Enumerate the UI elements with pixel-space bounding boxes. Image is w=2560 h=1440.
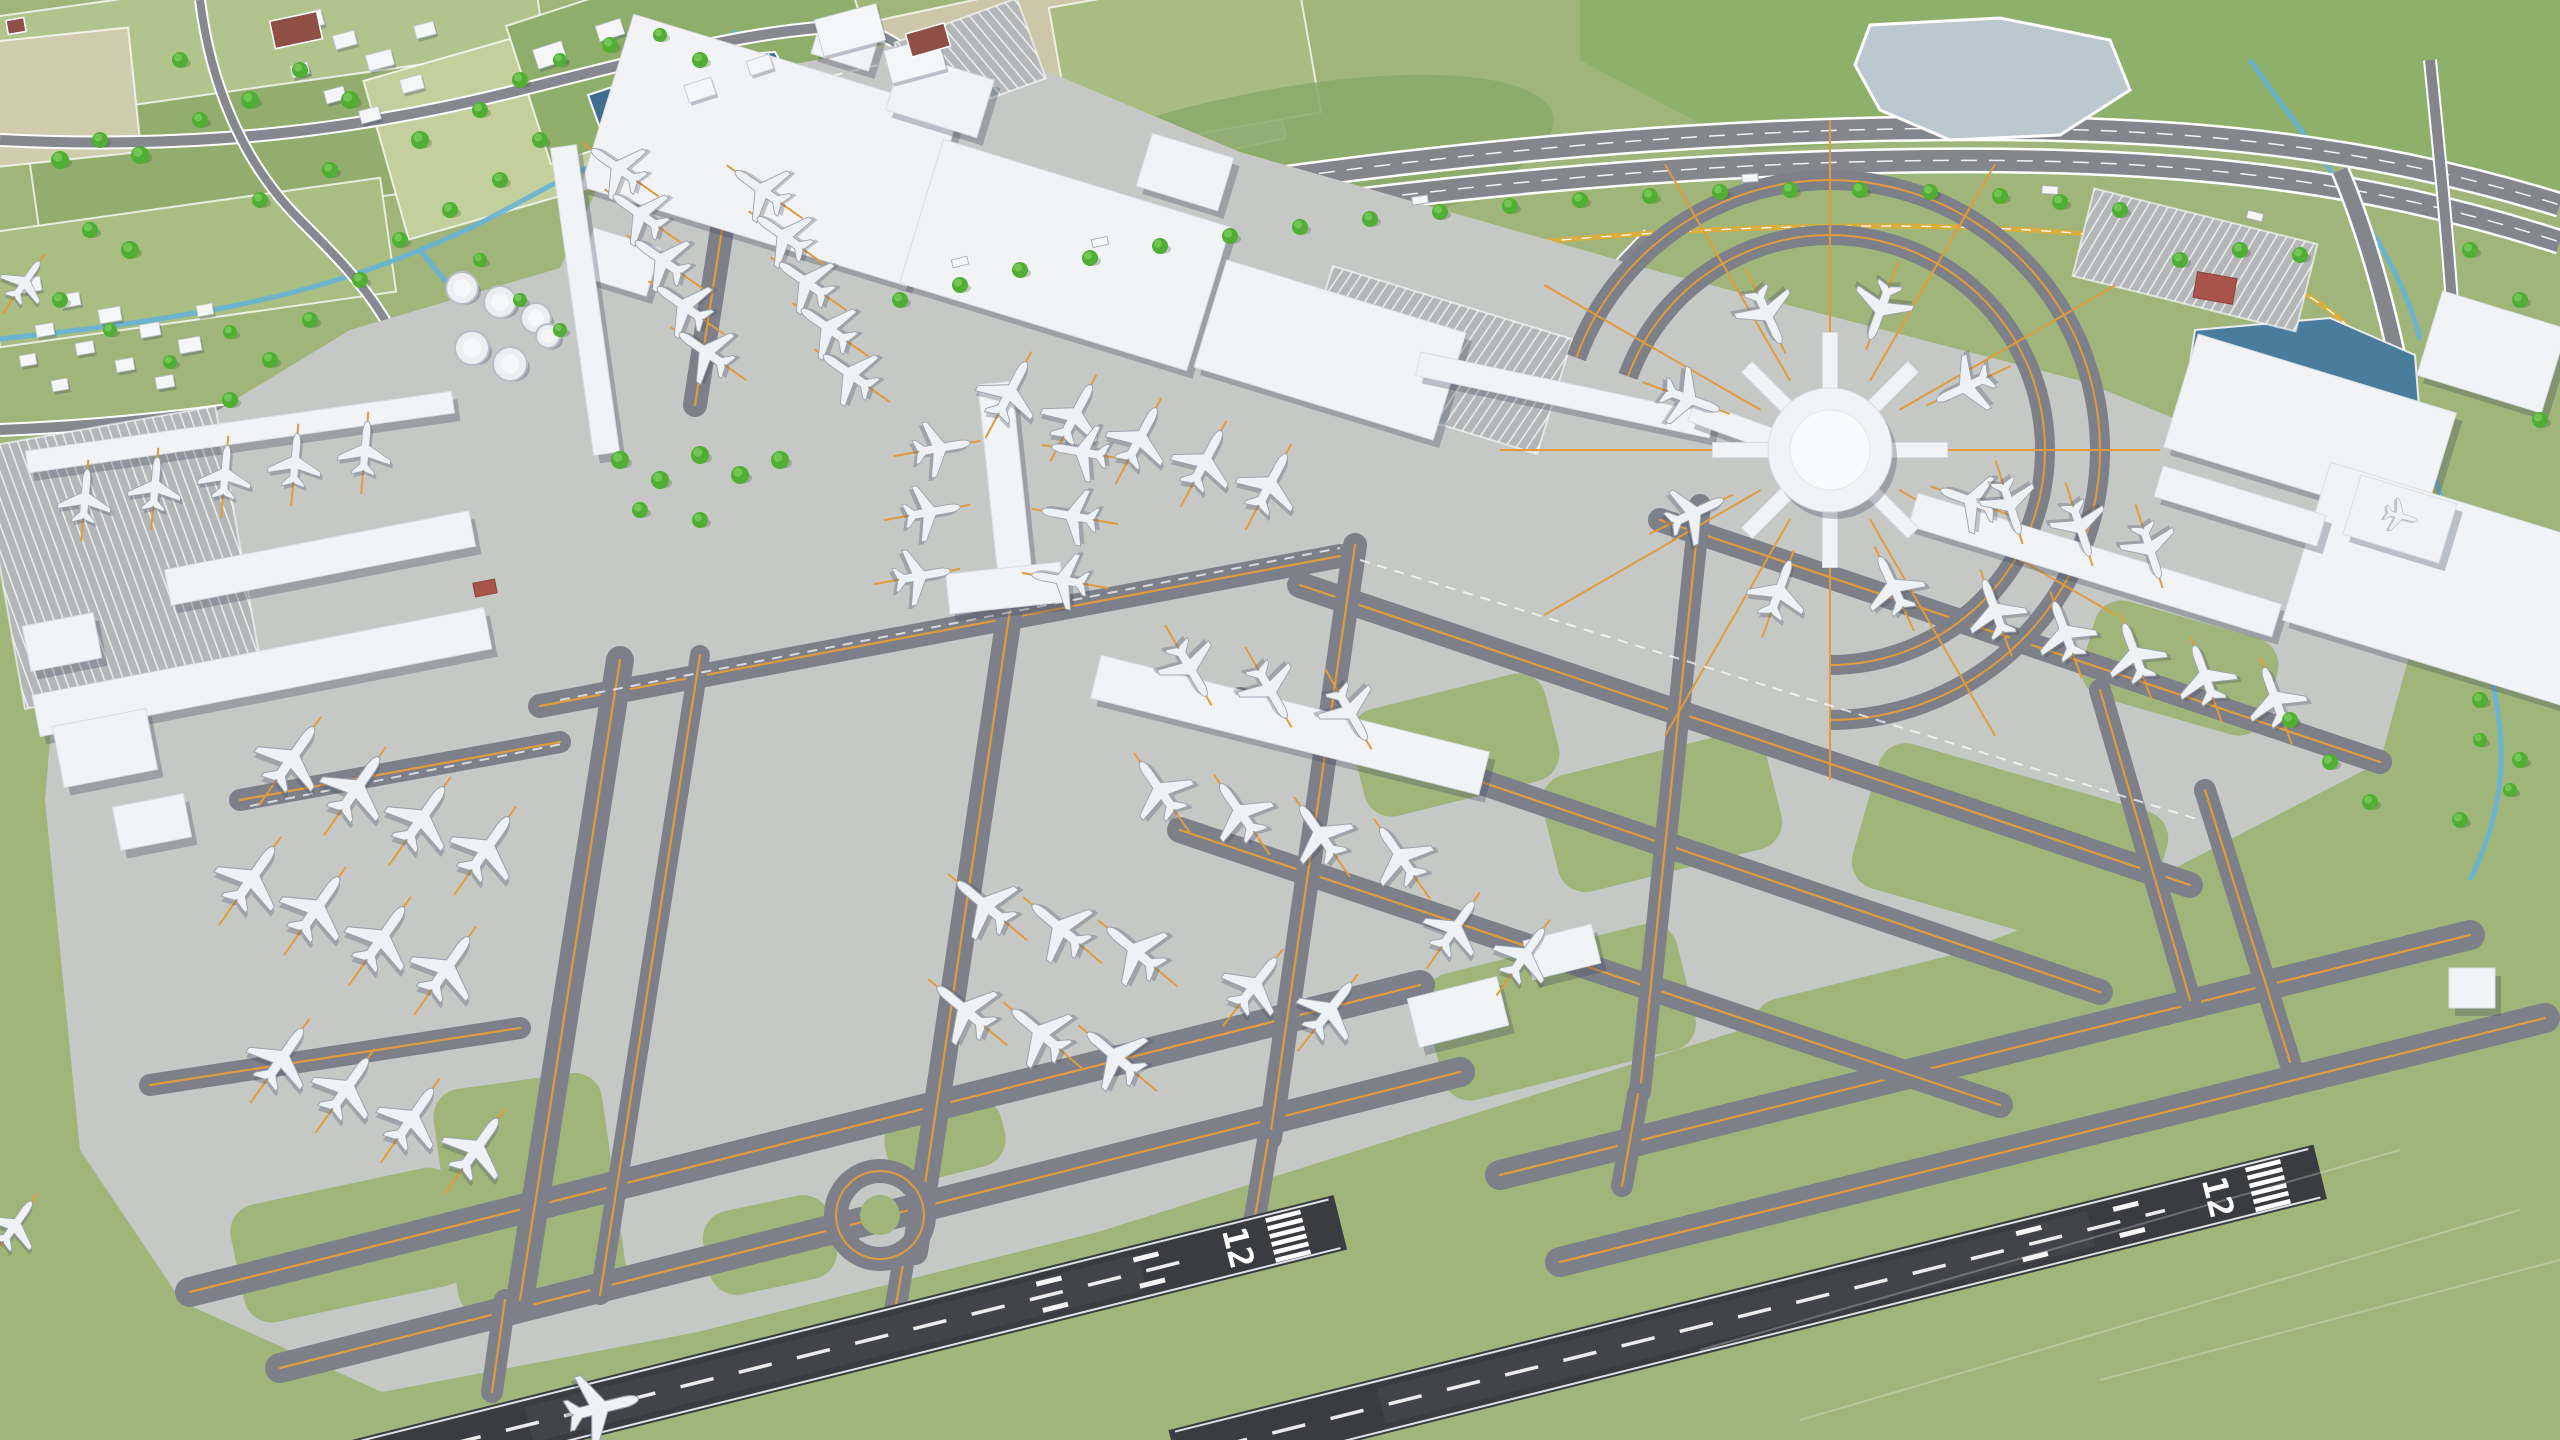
tree-highlight — [555, 54, 562, 61]
tree-highlight — [515, 294, 522, 301]
tree-highlight — [655, 29, 662, 36]
tree-highlight — [514, 74, 522, 82]
tree-highlight — [224, 394, 232, 402]
tree-highlight — [225, 326, 232, 333]
vehicle — [2042, 185, 2059, 194]
tree-highlight — [324, 164, 332, 172]
tree-highlight — [165, 356, 172, 363]
tree-highlight — [2324, 756, 2332, 764]
house — [115, 358, 135, 373]
tree-highlight — [254, 194, 262, 202]
tree-highlight — [474, 104, 482, 112]
tree-highlight — [2114, 204, 2122, 212]
tree-highlight — [304, 314, 312, 322]
tree-highlight — [2054, 196, 2062, 204]
tree-highlight — [294, 64, 302, 72]
tree-highlight — [133, 148, 142, 157]
building — [2449, 968, 2495, 1008]
airport-3d-map: 1212 — [0, 0, 2560, 1440]
tree-highlight — [84, 224, 92, 232]
tree-highlight — [2454, 814, 2462, 822]
tree-highlight — [653, 473, 662, 482]
tree-highlight — [693, 448, 702, 457]
tree-highlight — [444, 204, 452, 212]
tree-highlight — [1084, 252, 1092, 260]
house — [75, 341, 95, 356]
tree-highlight — [243, 93, 252, 102]
tree-highlight — [534, 134, 542, 142]
tree-highlight — [174, 54, 182, 62]
satellite-dome — [1790, 410, 1870, 490]
tree-highlight — [1854, 184, 1862, 192]
house — [19, 353, 37, 367]
house — [155, 375, 175, 390]
tree-highlight — [1154, 240, 1162, 248]
tree-highlight — [123, 243, 132, 252]
tree-highlight — [1574, 194, 1582, 202]
tree-highlight — [354, 274, 362, 282]
vehicle — [1742, 174, 1758, 183]
tree-highlight — [194, 114, 202, 122]
vehicle — [1412, 195, 1429, 205]
tree-highlight — [773, 453, 782, 462]
tree-highlight — [2514, 754, 2522, 762]
tree-highlight — [2174, 254, 2182, 262]
tree-highlight — [1924, 186, 1932, 194]
tree-highlight — [613, 453, 622, 462]
tree-highlight — [894, 294, 902, 302]
tree-highlight — [1224, 230, 1232, 238]
tree-highlight — [2364, 796, 2372, 804]
tree-highlight — [1994, 190, 2002, 198]
tree-highlight — [2464, 244, 2472, 252]
tree-highlight — [105, 324, 112, 331]
tree-highlight — [733, 468, 742, 477]
fuel-tank-top — [453, 279, 471, 297]
tree-highlight — [694, 54, 702, 62]
sports-court — [6, 18, 26, 35]
tree-highlight — [1364, 213, 1372, 221]
tree-highlight — [1294, 221, 1302, 229]
tree-highlight — [694, 514, 702, 522]
tree-highlight — [2474, 694, 2482, 702]
tree-highlight — [2505, 784, 2512, 791]
tree-highlight — [2294, 249, 2302, 257]
house — [35, 323, 55, 338]
fuel-tank-top — [528, 310, 545, 327]
tree-highlight — [1434, 206, 1442, 214]
tree-highlight — [1644, 190, 1652, 198]
tree-highlight — [54, 294, 62, 302]
tree-highlight — [394, 234, 402, 242]
fuel-tank-top — [541, 329, 554, 342]
tree-highlight — [2534, 414, 2542, 422]
tree-highlight — [1014, 264, 1022, 272]
tree-highlight — [634, 504, 642, 512]
tree-highlight — [264, 354, 272, 362]
tree-highlight — [2514, 294, 2522, 302]
tree-highlight — [954, 279, 962, 287]
tree-highlight — [2234, 244, 2242, 252]
tree-highlight — [555, 324, 562, 331]
fuel-tank-top — [463, 339, 482, 358]
tree-highlight — [1714, 186, 1722, 194]
roundabout-grass — [860, 1195, 900, 1235]
tree-highlight — [2475, 734, 2482, 741]
house — [51, 378, 69, 392]
tree-highlight — [343, 93, 352, 102]
tree-highlight — [94, 134, 102, 142]
tree-highlight — [1504, 200, 1512, 208]
tree-highlight — [2284, 714, 2292, 722]
tree-highlight — [494, 174, 502, 182]
tree-highlight — [53, 153, 62, 162]
tree-highlight — [604, 39, 612, 47]
tree-highlight — [1784, 184, 1792, 192]
fuel-tank-top — [501, 355, 520, 374]
fuel-tank-top — [491, 293, 509, 311]
house — [196, 303, 214, 317]
tree-highlight — [475, 254, 482, 261]
tree-highlight — [413, 133, 422, 142]
